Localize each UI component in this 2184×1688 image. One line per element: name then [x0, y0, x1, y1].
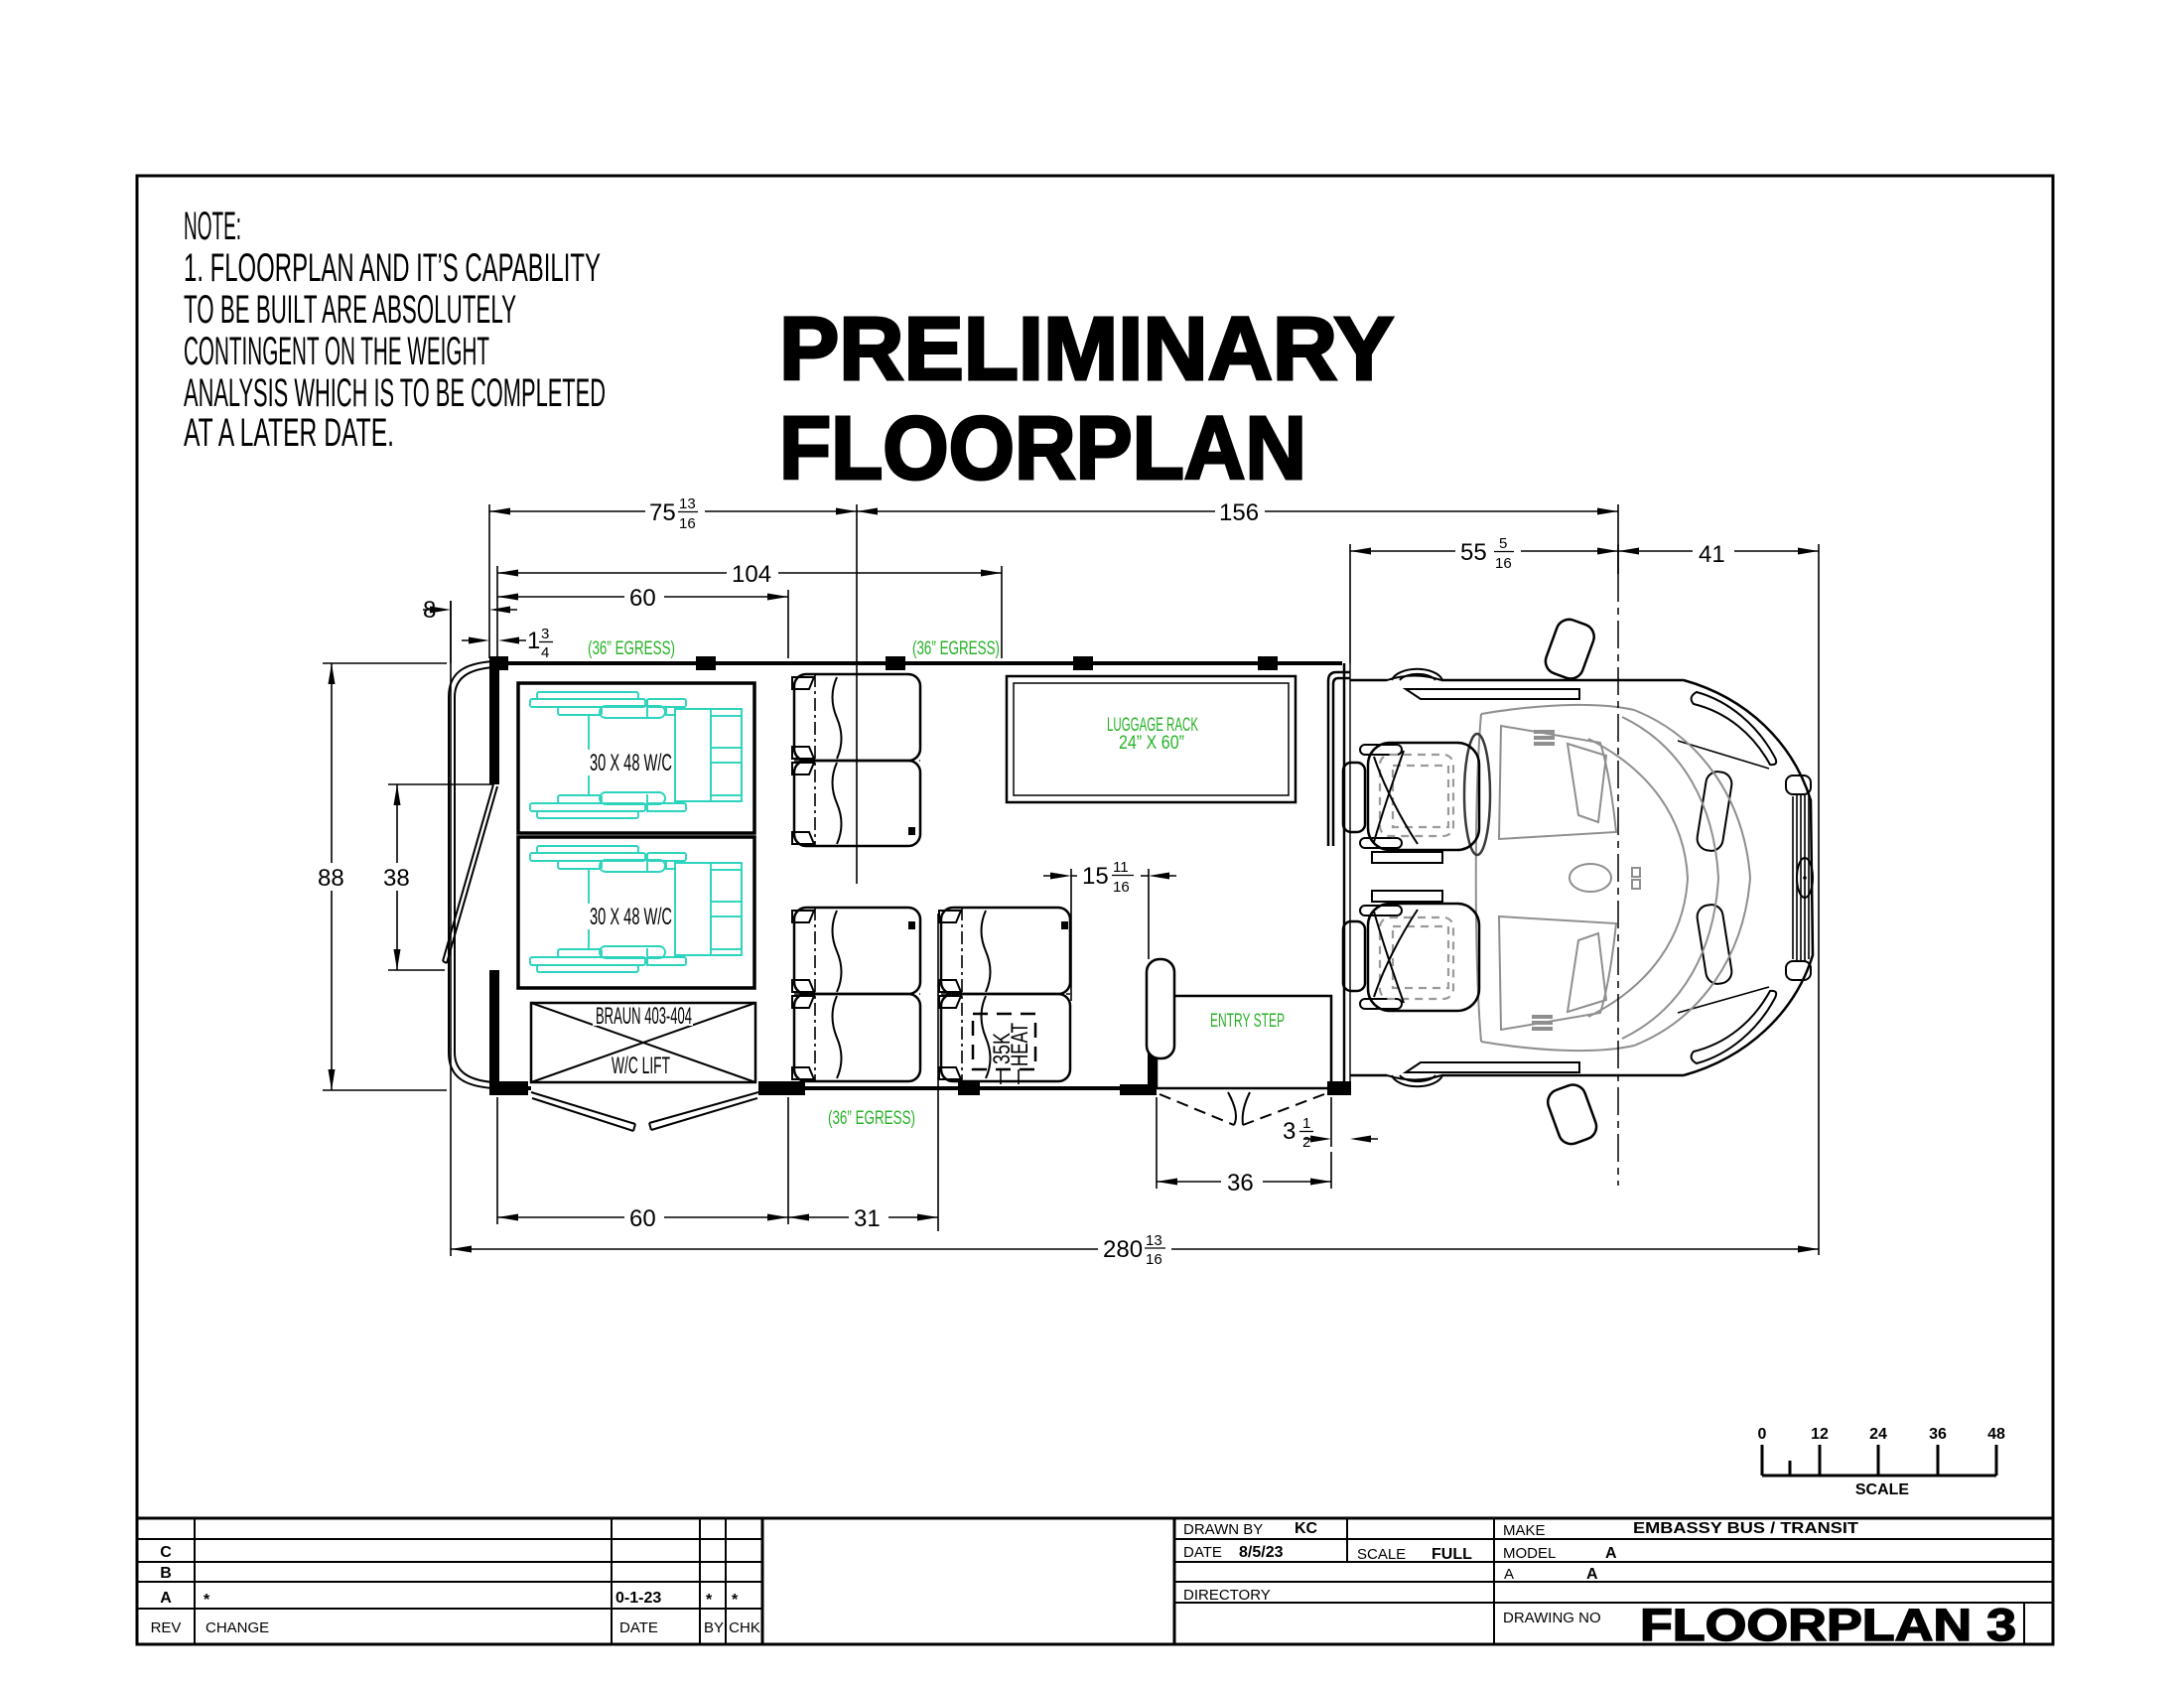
svg-text:8: 8 [423, 597, 436, 624]
svg-text:1: 1 [1302, 1115, 1310, 1132]
svg-text:104: 104 [732, 561, 771, 588]
svg-text:SCALE: SCALE [1855, 1481, 1910, 1498]
svg-text:DRAWING NO: DRAWING NO [1503, 1610, 1601, 1626]
svg-text:36: 36 [1929, 1426, 1947, 1443]
svg-text:DATE: DATE [1183, 1544, 1222, 1561]
svg-text:30 X 48 W/C: 30 X 48 W/C [590, 904, 672, 930]
svg-text:BRAUN 403-404: BRAUN 403-404 [596, 1003, 692, 1030]
svg-text:DATE: DATE [619, 1619, 658, 1636]
svg-text:3: 3 [541, 626, 549, 642]
svg-text:SCALE: SCALE [1357, 1546, 1406, 1563]
svg-text:280: 280 [1103, 1236, 1143, 1263]
svg-text:16: 16 [1495, 555, 1512, 572]
svg-text:38: 38 [383, 865, 410, 892]
svg-text:24: 24 [1869, 1426, 1887, 1443]
svg-text:36: 36 [1227, 1170, 1254, 1196]
svg-text:TO BE BUILT ARE ABSOLUTELY: TO BE BUILT ARE ABSOLUTELY [184, 288, 516, 332]
svg-text:*: * [732, 1592, 739, 1609]
svg-text:C: C [160, 1544, 172, 1561]
svg-text:W/C LIFT: W/C LIFT [612, 1053, 670, 1079]
svg-text:PRELIMINARY: PRELIMINARY [779, 300, 1394, 399]
svg-text:4: 4 [541, 644, 549, 661]
svg-text:13: 13 [679, 495, 696, 512]
svg-text:30 X 48 W/C: 30 X 48 W/C [590, 750, 672, 776]
svg-text:60: 60 [629, 585, 656, 612]
svg-text:MODEL: MODEL [1503, 1545, 1556, 1562]
svg-text:75: 75 [649, 499, 676, 526]
svg-text:KC: KC [1295, 1520, 1318, 1537]
svg-text:BY: BY [704, 1619, 724, 1636]
svg-text:*: * [706, 1592, 713, 1609]
svg-text:16: 16 [1146, 1251, 1162, 1268]
svg-text:A: A [1586, 1566, 1598, 1583]
svg-text:31: 31 [854, 1205, 881, 1232]
svg-text:88: 88 [318, 865, 344, 892]
svg-text:ANALYSIS WHICH IS TO BE COMPLE: ANALYSIS WHICH IS TO BE COMPLETED [184, 371, 606, 415]
svg-text:0-1-23: 0-1-23 [615, 1590, 661, 1607]
svg-text:CHK: CHK [729, 1619, 760, 1636]
svg-text:1: 1 [527, 628, 540, 654]
svg-text:41: 41 [1699, 541, 1725, 568]
svg-text:55: 55 [1460, 539, 1487, 566]
svg-text:AT A LATER DATE.: AT A LATER DATE. [184, 411, 394, 455]
svg-text:8/5/23: 8/5/23 [1239, 1544, 1284, 1561]
svg-text:(36” EGRESS): (36” EGRESS) [588, 638, 675, 659]
svg-text:FLOORPLAN 3: FLOORPLAN 3 [1640, 1600, 2016, 1650]
svg-text:13: 13 [1146, 1232, 1162, 1249]
svg-text:FULL: FULL [1432, 1546, 1472, 1563]
svg-text:48: 48 [1987, 1426, 2005, 1443]
svg-text:16: 16 [1113, 879, 1130, 896]
svg-text:HEAT: HEAT [1007, 1023, 1033, 1066]
svg-text:60: 60 [629, 1205, 656, 1232]
svg-text:(36” EGRESS): (36” EGRESS) [912, 638, 1000, 659]
svg-text:B: B [160, 1565, 172, 1582]
svg-text:REV: REV [151, 1619, 182, 1636]
svg-text:(36” EGRESS): (36” EGRESS) [828, 1108, 915, 1129]
svg-text:12: 12 [1811, 1426, 1829, 1443]
svg-text:156: 156 [1219, 499, 1259, 526]
svg-text:A: A [1504, 1566, 1514, 1583]
svg-text:*: * [204, 1592, 210, 1609]
svg-text:NOTE:: NOTE: [184, 205, 241, 248]
svg-text:2: 2 [1302, 1134, 1310, 1151]
svg-text:0: 0 [1758, 1426, 1767, 1443]
svg-text:1. FLOORPLAN AND IT’S CAPABIL: 1. FLOORPLAN AND IT’S CAPABILITY [184, 246, 601, 290]
svg-text:CHANGE: CHANGE [205, 1619, 269, 1636]
svg-text:5: 5 [1499, 535, 1507, 552]
svg-text:EMBASSY BUS / TRANSIT: EMBASSY BUS / TRANSIT [1633, 1520, 1858, 1537]
svg-text:15: 15 [1082, 863, 1109, 890]
svg-text:DRAWN BY: DRAWN BY [1183, 1521, 1263, 1538]
svg-text:ENTRY STEP: ENTRY STEP [1210, 1011, 1285, 1032]
svg-text:3: 3 [1283, 1118, 1296, 1145]
svg-text:11: 11 [1113, 859, 1129, 876]
svg-text:A: A [1605, 1545, 1617, 1562]
svg-text:MAKE: MAKE [1503, 1522, 1546, 1539]
svg-text:DIRECTORY: DIRECTORY [1183, 1587, 1271, 1604]
svg-text:16: 16 [679, 515, 696, 532]
svg-text:A: A [160, 1590, 172, 1607]
svg-text:24” X 60”: 24” X 60” [1119, 733, 1184, 754]
svg-text:FLOORPLAN: FLOORPLAN [779, 399, 1306, 498]
svg-text:CONTINGENT ON THE WEIGHT: CONTINGENT ON THE WEIGHT [184, 330, 489, 373]
